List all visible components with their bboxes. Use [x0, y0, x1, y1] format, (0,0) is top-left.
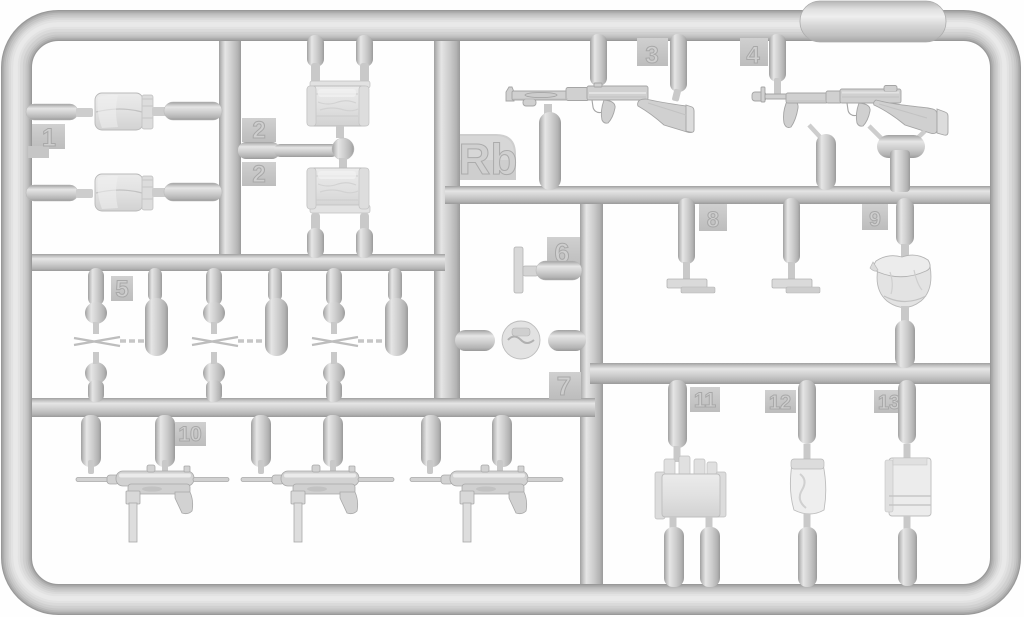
svg-text:8: 8 [707, 207, 719, 232]
svg-text:2: 2 [252, 117, 265, 144]
svg-text:13: 13 [878, 392, 900, 414]
svg-text:4: 4 [746, 42, 760, 69]
svg-text:7: 7 [557, 371, 571, 401]
svg-text:3: 3 [645, 42, 658, 69]
svg-text:9: 9 [869, 208, 881, 231]
svg-text:10: 10 [178, 423, 201, 446]
svg-text:2: 2 [252, 161, 265, 188]
svg-text:11: 11 [694, 389, 717, 412]
svg-text:Rb: Rb [459, 135, 518, 184]
svg-text:12: 12 [769, 392, 791, 414]
svg-text:1: 1 [42, 124, 56, 152]
svg-text:5: 5 [115, 276, 128, 303]
